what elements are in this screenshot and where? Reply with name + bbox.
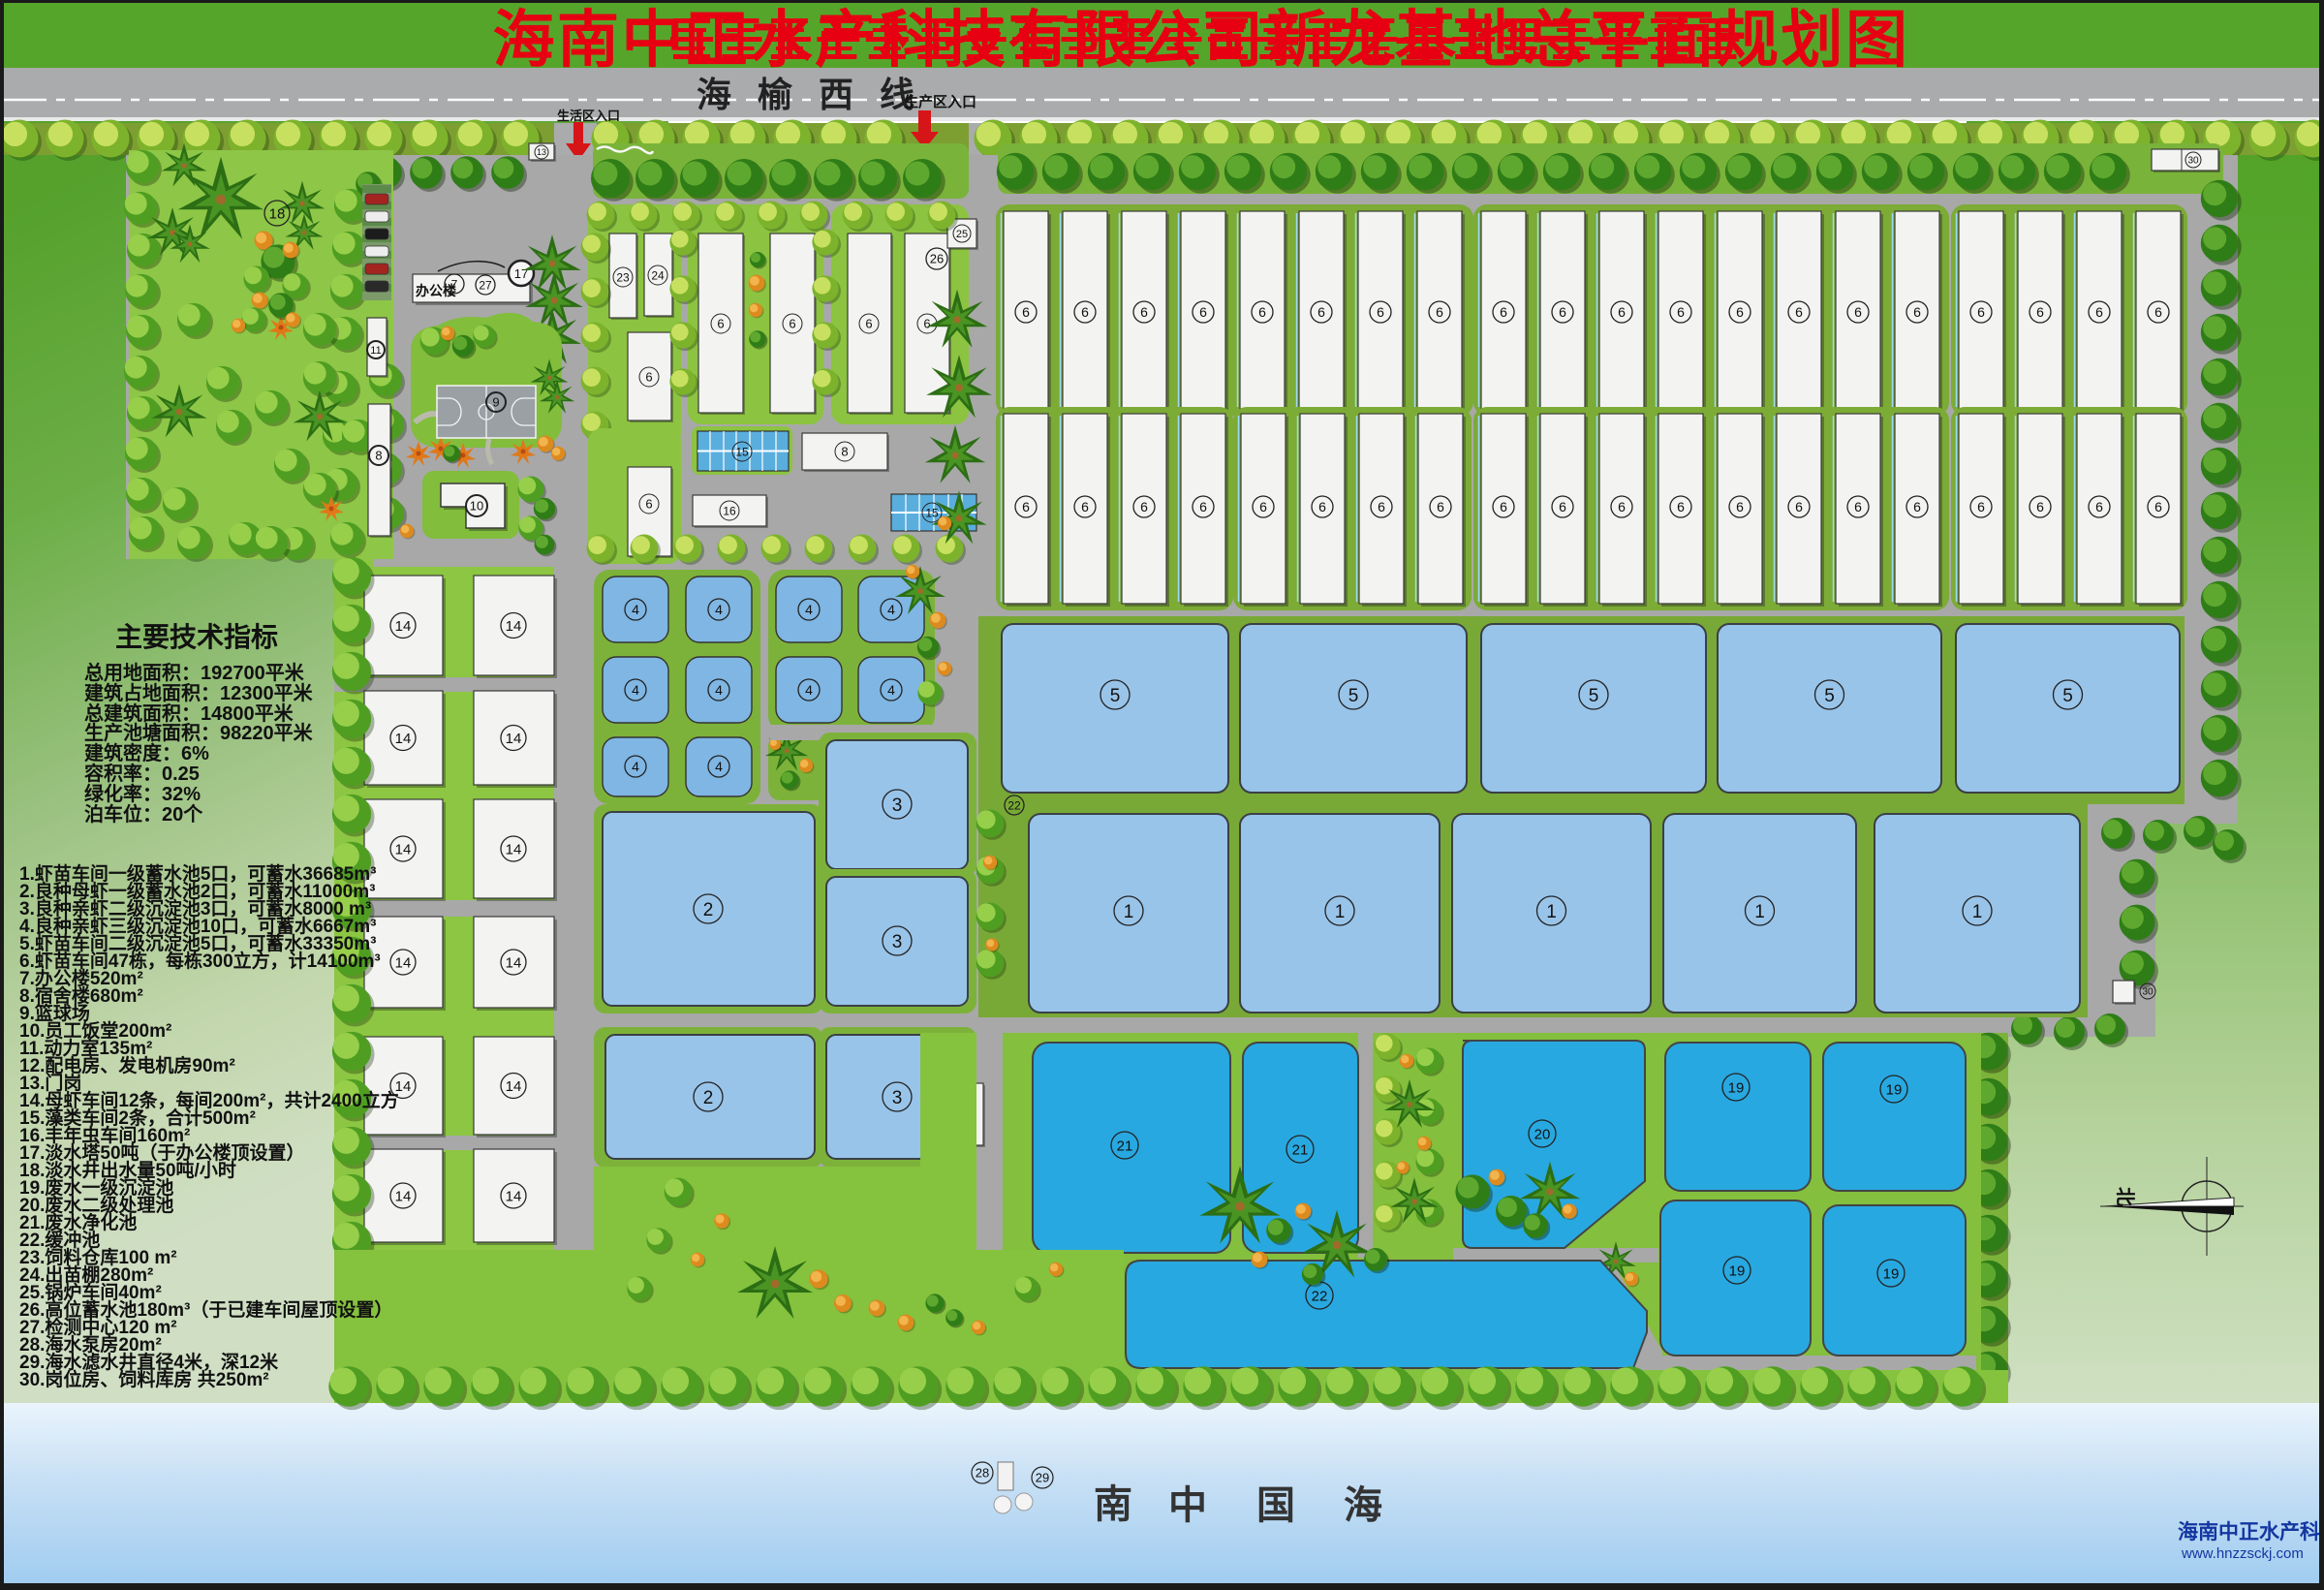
svg-text:6: 6 [1559, 304, 1566, 320]
svg-text:14: 14 [506, 618, 522, 635]
svg-text:4: 4 [805, 602, 813, 617]
svg-text:14: 14 [395, 1188, 412, 1204]
svg-text:www.hnzzsckj.com: www.hnzzsckj.com [2181, 1545, 2304, 1562]
svg-text:6: 6 [2036, 304, 2044, 320]
svg-text:6: 6 [1795, 499, 1803, 514]
svg-text:6: 6 [1913, 499, 1921, 514]
svg-text:14: 14 [506, 841, 522, 857]
svg-text:榆: 榆 [758, 75, 793, 114]
svg-text:海: 海 [1344, 1484, 1382, 1527]
svg-text:7: 7 [451, 277, 458, 291]
svg-text:22: 22 [1007, 798, 1021, 812]
svg-text:6: 6 [1795, 304, 1803, 320]
svg-text:11: 11 [370, 345, 381, 357]
svg-text:6: 6 [2095, 304, 2103, 320]
svg-text:13: 13 [537, 147, 546, 157]
svg-text:国: 国 [1256, 1484, 1295, 1527]
svg-text:18: 18 [269, 205, 286, 222]
svg-text:西: 西 [819, 75, 853, 114]
svg-text:6: 6 [789, 317, 795, 331]
svg-text:21: 21 [1292, 1141, 1309, 1158]
svg-text:容积率：0.25: 容积率：0.25 [84, 762, 200, 785]
svg-text:建筑占地面积：12300平米: 建筑占地面积：12300平米 [84, 681, 314, 704]
svg-text:29: 29 [1036, 1471, 1049, 1485]
svg-text:6: 6 [923, 317, 930, 331]
svg-text:6: 6 [1677, 499, 1685, 514]
svg-text:25: 25 [956, 229, 968, 240]
svg-text:6: 6 [1378, 499, 1385, 514]
svg-text:16: 16 [723, 504, 736, 517]
svg-text:6: 6 [1677, 304, 1685, 320]
svg-text:北: 北 [2114, 1187, 2136, 1206]
svg-text:19: 19 [1883, 1265, 1900, 1282]
svg-text:6: 6 [1736, 304, 1744, 320]
svg-text:10: 10 [470, 499, 483, 514]
svg-text:14: 14 [395, 954, 412, 971]
svg-text:海南中正水产科技有限公司新龙基地总平面规划图: 海南中正水产科技有限公司新龙基地总平面规划图 [493, 5, 1910, 75]
svg-text:主要技术指标: 主要技术指标 [115, 622, 278, 652]
svg-text:22: 22 [1312, 1288, 1328, 1304]
svg-text:6: 6 [1500, 499, 1507, 514]
svg-text:6: 6 [1436, 304, 1443, 320]
svg-text:4: 4 [887, 602, 895, 617]
svg-text:海南中正水产科技: 海南中正水产科技 [2178, 1520, 2324, 1543]
svg-text:30.岗位房、饲料库房 共250m²: 30.岗位房、饲料库房 共250m² [19, 1368, 269, 1390]
svg-text:中: 中 [1168, 1484, 1207, 1527]
svg-text:6: 6 [645, 370, 652, 385]
svg-text:8: 8 [375, 449, 382, 463]
svg-text:24: 24 [651, 268, 665, 282]
svg-text:27: 27 [479, 278, 492, 292]
svg-text:19: 19 [1729, 1263, 1746, 1279]
svg-text:总建筑面积：14800平米: 总建筑面积：14800平米 [84, 701, 294, 725]
svg-text:5: 5 [1110, 686, 1121, 706]
svg-text:14: 14 [395, 618, 412, 635]
svg-text:28: 28 [976, 1466, 989, 1481]
svg-text:4: 4 [715, 602, 723, 617]
svg-text:总用地面积：192700平米: 总用地面积：192700平米 [84, 661, 305, 684]
svg-text:14: 14 [506, 1188, 522, 1204]
svg-text:6: 6 [1854, 304, 1862, 320]
svg-text:6: 6 [1977, 304, 1985, 320]
svg-text:4: 4 [632, 759, 639, 774]
svg-text:6: 6 [1736, 499, 1744, 514]
svg-text:6: 6 [1437, 499, 1444, 514]
svg-text:5: 5 [1589, 686, 1599, 706]
svg-text:6: 6 [1913, 304, 1921, 320]
svg-text:6: 6 [1618, 499, 1626, 514]
svg-text:6: 6 [1318, 499, 1326, 514]
svg-text:20: 20 [1534, 1126, 1551, 1142]
svg-text:5: 5 [1824, 686, 1835, 706]
svg-text:泊车位：20个: 泊车位：20个 [84, 802, 203, 826]
svg-text:1: 1 [1972, 902, 1983, 922]
svg-text:6: 6 [2095, 499, 2103, 514]
svg-text:2: 2 [703, 1088, 714, 1108]
svg-text:建筑密度：6%: 建筑密度：6% [84, 741, 209, 764]
svg-text:6: 6 [2154, 499, 2162, 514]
svg-text:14: 14 [506, 1078, 522, 1095]
svg-text:1: 1 [1754, 902, 1765, 922]
svg-text:17: 17 [514, 266, 528, 281]
svg-text:5: 5 [1348, 686, 1359, 706]
svg-text:6: 6 [865, 317, 872, 331]
svg-text:6: 6 [1317, 304, 1325, 320]
svg-text:海: 海 [697, 75, 731, 114]
svg-text:8: 8 [841, 445, 848, 459]
svg-text:3: 3 [892, 932, 903, 952]
svg-text:6: 6 [1377, 304, 1384, 320]
svg-text:6: 6 [717, 317, 724, 331]
svg-text:6: 6 [1022, 499, 1030, 514]
svg-text:14: 14 [506, 731, 522, 747]
svg-text:6: 6 [1618, 304, 1626, 320]
svg-text:15: 15 [735, 445, 749, 458]
svg-text:6: 6 [1559, 499, 1566, 514]
svg-text:30: 30 [2187, 156, 2199, 167]
svg-text:3: 3 [892, 1088, 903, 1108]
svg-text:15: 15 [925, 506, 939, 519]
svg-text:6: 6 [1140, 499, 1148, 514]
svg-text:4: 4 [632, 682, 639, 698]
svg-text:4: 4 [805, 682, 813, 698]
svg-text:1: 1 [1546, 902, 1557, 922]
svg-text:4: 4 [632, 602, 639, 617]
svg-text:6: 6 [2036, 499, 2044, 514]
svg-text:3: 3 [892, 795, 903, 816]
svg-text:19: 19 [1728, 1079, 1745, 1096]
svg-text:6: 6 [1199, 304, 1207, 320]
svg-text:生产区入口: 生产区入口 [904, 93, 976, 110]
svg-text:23: 23 [616, 270, 630, 284]
svg-text:6: 6 [645, 497, 652, 512]
svg-text:6: 6 [1022, 304, 1030, 320]
svg-text:6: 6 [2154, 304, 2162, 320]
svg-text:14: 14 [506, 954, 522, 971]
svg-text:6: 6 [1081, 499, 1089, 514]
svg-text:1: 1 [1124, 902, 1134, 922]
svg-text:6: 6 [1259, 499, 1267, 514]
svg-text:21: 21 [1117, 1138, 1133, 1154]
svg-text:6: 6 [1500, 304, 1507, 320]
svg-text:2: 2 [703, 900, 714, 920]
svg-text:生活区入口: 生活区入口 [557, 109, 620, 123]
svg-text:14: 14 [395, 841, 412, 857]
svg-text:26: 26 [930, 252, 944, 266]
svg-text:4: 4 [715, 759, 723, 774]
svg-text:19: 19 [1886, 1081, 1903, 1098]
svg-text:1: 1 [1335, 902, 1346, 922]
svg-text:4: 4 [715, 682, 723, 698]
svg-text:南: 南 [1094, 1483, 1132, 1526]
svg-text:30: 30 [2142, 987, 2154, 998]
svg-text:4: 4 [887, 682, 895, 698]
svg-text:6: 6 [1258, 304, 1266, 320]
svg-text:14: 14 [395, 731, 412, 747]
svg-text:6: 6 [1199, 499, 1207, 514]
svg-text:绿化率：32%: 绿化率：32% [84, 782, 201, 805]
svg-text:6: 6 [1140, 304, 1148, 320]
svg-text:9: 9 [492, 395, 499, 410]
svg-text:6: 6 [1854, 499, 1862, 514]
svg-text:6: 6 [1977, 499, 1985, 514]
svg-text:6: 6 [1081, 304, 1089, 320]
svg-text:生产池塘面积：98220平米: 生产池塘面积：98220平米 [84, 721, 314, 744]
svg-text:5: 5 [2062, 686, 2073, 706]
